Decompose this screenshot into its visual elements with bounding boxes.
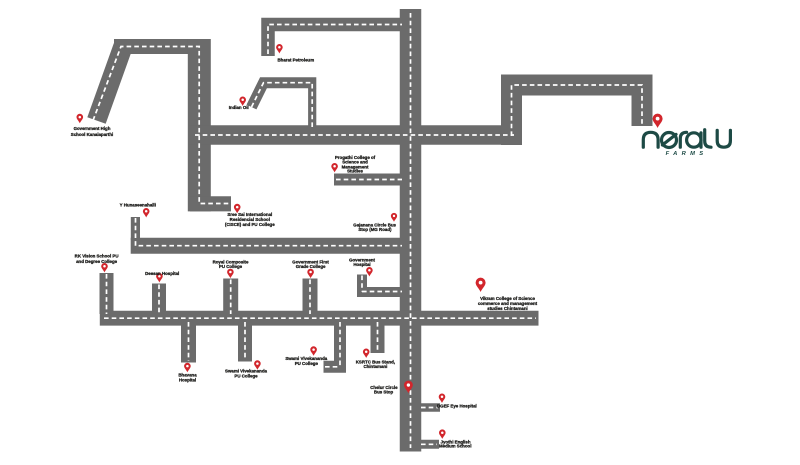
svg-text:Stop (MG Road): Stop (MG Road) [358,227,392,232]
svg-text:Hospital: Hospital [353,262,370,267]
svg-text:PU College: PU College [295,361,319,366]
svg-text:School Kanalaparthi: School Kanalaparthi [71,132,113,137]
svg-text:Grade College: Grade College [296,264,326,269]
svg-text:Government High: Government High [74,126,111,131]
svg-text:PU College: PU College [234,373,258,378]
svg-text:Bharat Petroleum: Bharat Petroleum [278,57,315,62]
svg-text:Y Hunaseenahalli: Y Hunaseenahalli [120,203,156,208]
svg-text:(CISCE) and PU College: (CISCE) and PU College [225,222,275,227]
svg-text:Indian Oil: Indian Oil [229,105,249,110]
svg-text:Studies: Studies [347,169,363,174]
svg-text:Medium School: Medium School [439,443,471,448]
svg-text:Deesan Hospital: Deesan Hospital [145,271,179,276]
svg-text:FARMS: FARMS [666,151,708,157]
svg-text:Chintamani: Chintamani [363,364,387,369]
svg-text:studies Chintamani: studies Chintamani [487,306,528,311]
svg-text:PU College: PU College [219,264,243,269]
svg-text:Hospital: Hospital [179,377,196,382]
svg-text:RK Vision School PU: RK Vision School PU [75,254,119,259]
svg-text:DGEF Eye Hospital: DGEF Eye Hospital [437,403,477,408]
svg-text:and Degree College: and Degree College [76,259,118,264]
svg-text:Bus Stop: Bus Stop [374,389,394,394]
